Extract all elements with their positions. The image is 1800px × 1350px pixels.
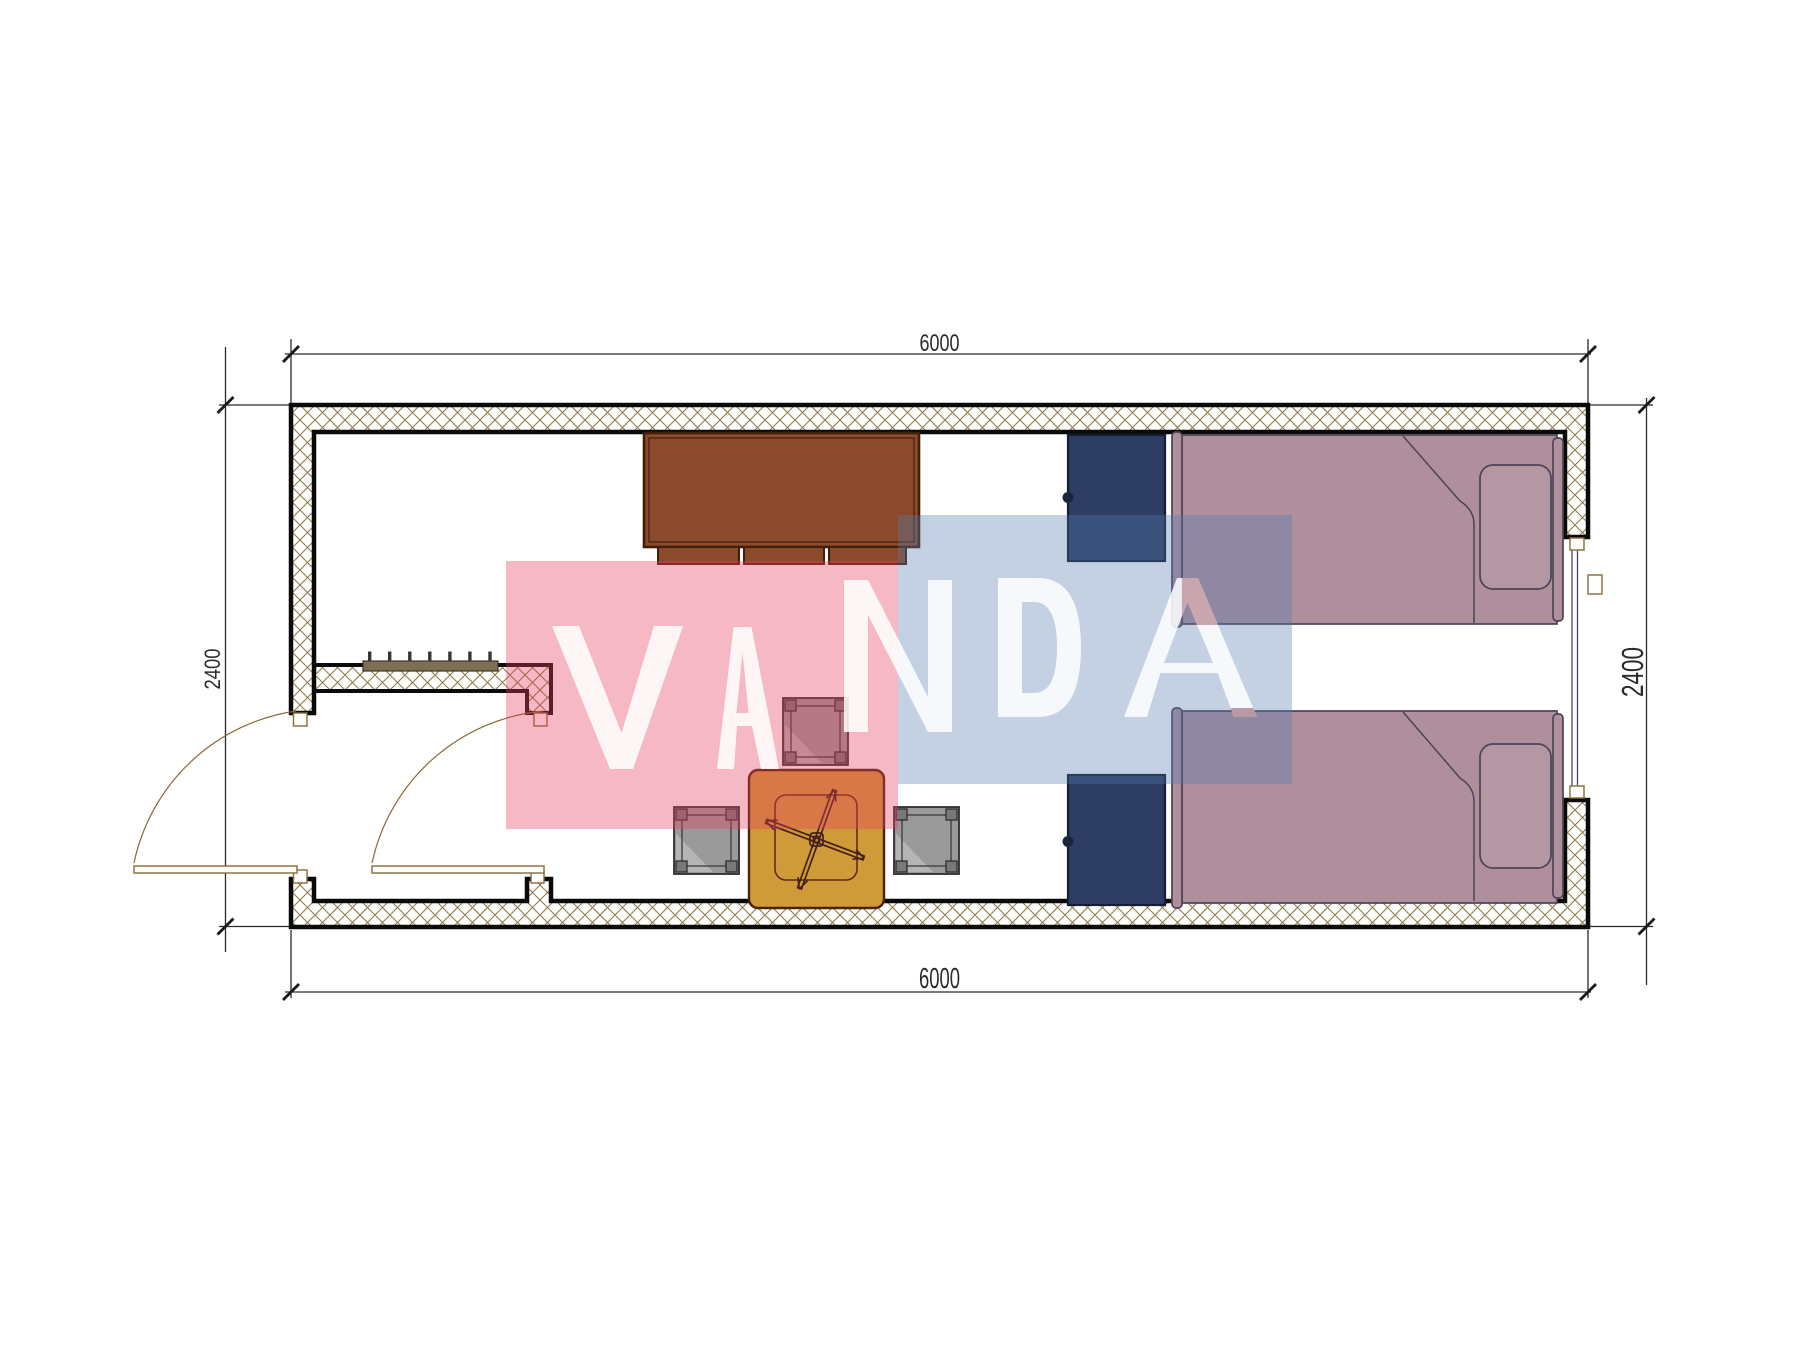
svg-text:2400: 2400 <box>200 649 225 690</box>
svg-text:2400: 2400 <box>1615 647 1650 697</box>
svg-text:6000: 6000 <box>919 963 960 995</box>
svg-text:6000: 6000 <box>920 330 960 357</box>
